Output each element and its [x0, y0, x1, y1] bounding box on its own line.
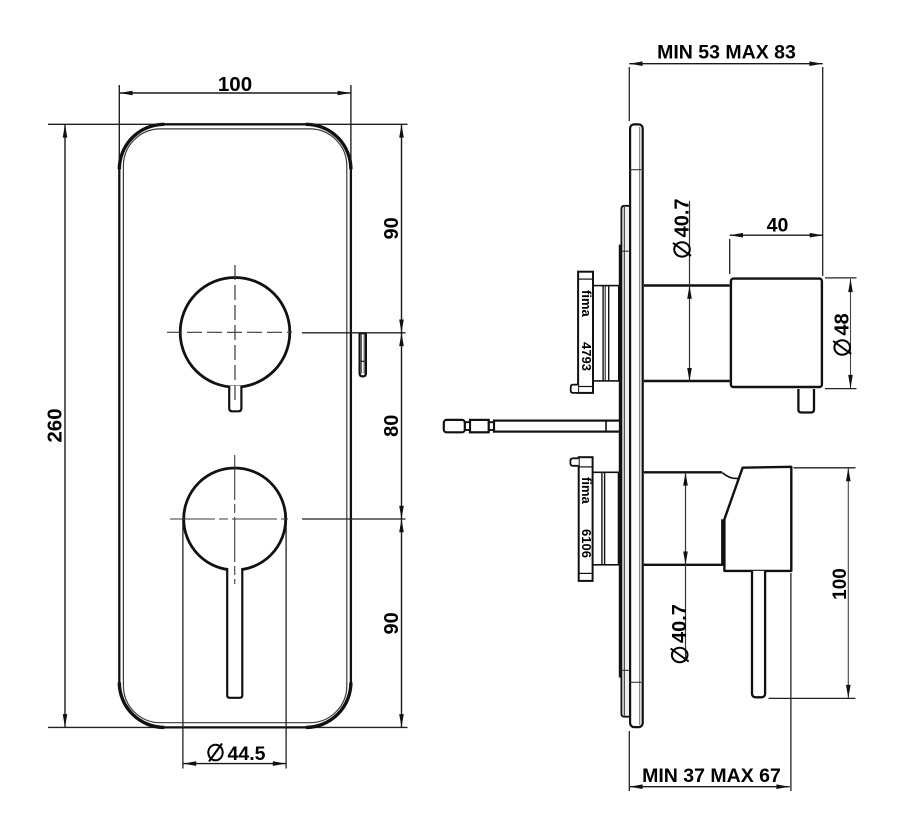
svg-text:40.7: 40.7	[671, 198, 693, 237]
svg-text:fima: fima	[579, 290, 594, 318]
svg-text:48: 48	[832, 313, 854, 335]
svg-text:90: 90	[381, 612, 403, 634]
svg-text:100: 100	[830, 568, 851, 600]
svg-text:40: 40	[767, 215, 789, 237]
svg-text:44.5: 44.5	[228, 743, 266, 765]
svg-text:fima: fima	[579, 477, 594, 505]
svg-text:100: 100	[218, 73, 252, 96]
svg-text:MIN 37 MAX 67: MIN 37 MAX 67	[642, 765, 781, 787]
svg-text:MIN 53 MAX 83: MIN 53 MAX 83	[657, 42, 796, 64]
svg-text:4793: 4793	[579, 342, 594, 371]
svg-text:90: 90	[381, 217, 403, 239]
svg-text:40.7: 40.7	[669, 604, 691, 643]
svg-text:80: 80	[381, 415, 403, 437]
svg-text:6106: 6106	[579, 529, 594, 558]
svg-text:260: 260	[44, 408, 67, 442]
